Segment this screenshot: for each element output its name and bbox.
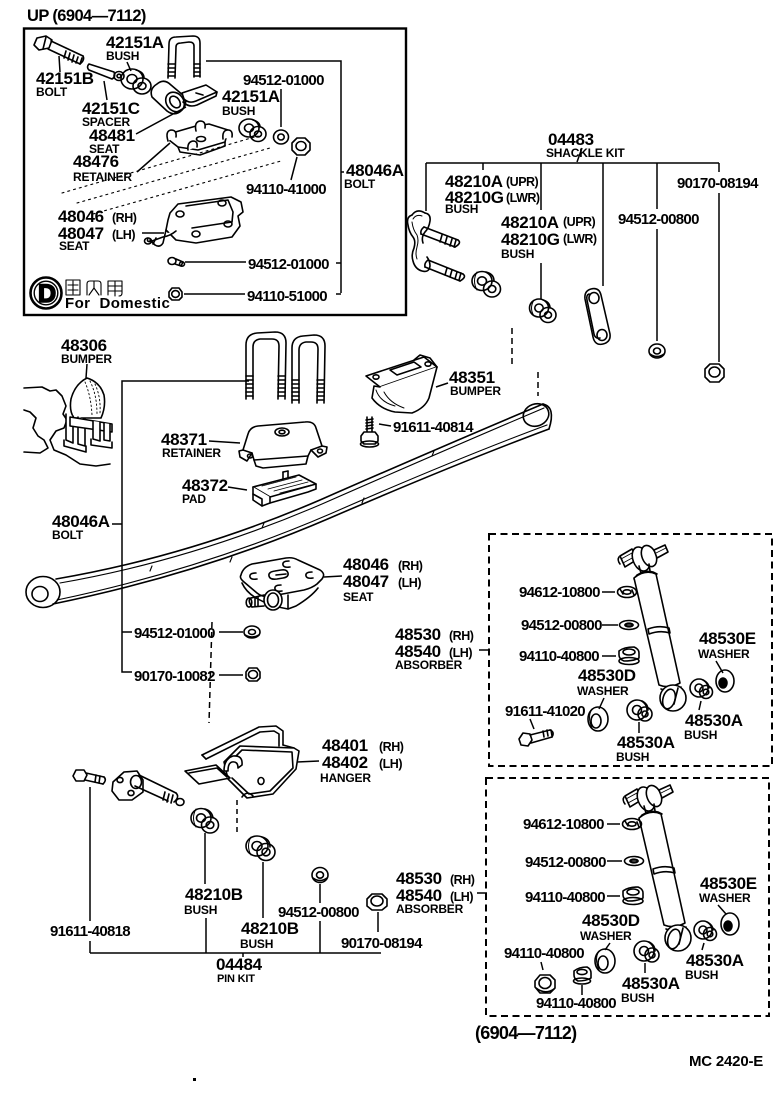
svg-text:BUSH: BUSH <box>685 968 718 982</box>
svg-text:04484: 04484 <box>216 955 263 974</box>
svg-text:BUSH: BUSH <box>240 937 273 951</box>
svg-text:(LH): (LH) <box>379 757 402 771</box>
svg-text:48047: 48047 <box>343 572 389 591</box>
svg-text:BOLT: BOLT <box>36 85 68 99</box>
svg-text:PIN KIT: PIN KIT <box>217 973 255 985</box>
svg-text:94512-01000: 94512-01000 <box>248 256 329 273</box>
svg-text:48530E: 48530E <box>699 629 756 648</box>
svg-text:(RH): (RH) <box>449 629 474 643</box>
svg-text:For Domestic: For Domestic <box>65 295 170 312</box>
svg-text:WASHER: WASHER <box>577 684 629 698</box>
svg-text:BOLT: BOLT <box>344 177 376 191</box>
svg-text:(UPR): (UPR) <box>506 175 539 189</box>
svg-text:48530D: 48530D <box>578 666 636 685</box>
svg-text:(UPR): (UPR) <box>563 215 596 229</box>
svg-text:91611-40814: 91611-40814 <box>393 419 474 436</box>
svg-text:48530D: 48530D <box>582 911 640 930</box>
svg-text:94110-51000: 94110-51000 <box>247 288 327 305</box>
svg-text:94612-10800: 94612-10800 <box>519 584 600 601</box>
svg-text:RETAINER: RETAINER <box>162 446 221 460</box>
svg-text:48476: 48476 <box>73 152 119 171</box>
svg-text:94110-40800: 94110-40800 <box>519 648 599 665</box>
svg-text:BUSH: BUSH <box>184 903 217 917</box>
svg-text:BUMPER: BUMPER <box>61 352 112 366</box>
svg-text:BUSH: BUSH <box>621 991 654 1005</box>
svg-text:48402: 48402 <box>322 753 368 772</box>
svg-text:91611-41020: 91611-41020 <box>505 703 585 720</box>
svg-text:94512-00800: 94512-00800 <box>618 211 699 228</box>
svg-text:94512-00800: 94512-00800 <box>525 854 606 871</box>
svg-text:BUSH: BUSH <box>501 247 534 261</box>
svg-text:(RH): (RH) <box>450 873 475 887</box>
svg-text:BUSH: BUSH <box>222 104 255 118</box>
svg-text:90170-08194: 90170-08194 <box>341 935 423 952</box>
svg-text:48210B: 48210B <box>185 885 243 904</box>
svg-text:BUSH: BUSH <box>616 750 649 764</box>
svg-text:(RH): (RH) <box>398 559 423 573</box>
svg-text:ABSORBER: ABSORBER <box>395 658 463 672</box>
svg-text:MC 2420-E: MC 2420-E <box>689 1053 763 1070</box>
svg-text:48210B: 48210B <box>241 919 299 938</box>
svg-text:(LH): (LH) <box>398 576 421 590</box>
svg-text:ABSORBER: ABSORBER <box>396 902 464 916</box>
svg-text:94110-41000: 94110-41000 <box>246 181 326 198</box>
svg-text:(RH): (RH) <box>379 740 404 754</box>
svg-text:90170-08194: 90170-08194 <box>677 175 759 192</box>
svg-text:UP (6904—7112): UP (6904—7112) <box>27 7 146 25</box>
svg-text:94110-40800: 94110-40800 <box>504 945 584 962</box>
svg-text:RETAINER: RETAINER <box>73 170 132 184</box>
svg-text:D: D <box>38 280 56 308</box>
svg-text:94110-40800: 94110-40800 <box>525 889 605 906</box>
svg-text:BOLT: BOLT <box>52 528 84 542</box>
svg-text:94512-00800: 94512-00800 <box>521 617 602 634</box>
svg-text:94612-10800: 94612-10800 <box>523 816 604 833</box>
svg-text:91611-40818: 91611-40818 <box>50 923 130 940</box>
svg-text:94512-01000: 94512-01000 <box>134 625 215 642</box>
svg-text:PAD: PAD <box>182 492 206 506</box>
svg-text:WASHER: WASHER <box>580 929 632 943</box>
svg-text:SHACKLE KIT: SHACKLE KIT <box>546 146 625 160</box>
svg-text:BUSH: BUSH <box>106 49 139 63</box>
svg-text:(LWR): (LWR) <box>506 191 540 205</box>
svg-text:BUSH: BUSH <box>445 202 478 216</box>
svg-text:WASHER: WASHER <box>699 891 751 905</box>
svg-text:SEAT: SEAT <box>343 590 374 604</box>
svg-text:BUSH: BUSH <box>684 728 717 742</box>
svg-text:90170-10082: 90170-10082 <box>134 668 215 685</box>
svg-text:BUMPER: BUMPER <box>450 384 501 398</box>
svg-text:(RH): (RH) <box>112 211 137 225</box>
svg-text:SEAT: SEAT <box>59 239 90 253</box>
svg-text:HANGER: HANGER <box>320 771 371 785</box>
svg-text:(6904—7112): (6904—7112) <box>475 1023 577 1043</box>
svg-text:(LH): (LH) <box>112 228 135 242</box>
svg-text:WASHER: WASHER <box>698 647 750 661</box>
svg-text:(LWR): (LWR) <box>563 232 597 246</box>
svg-text:94110-40800: 94110-40800 <box>536 995 616 1012</box>
